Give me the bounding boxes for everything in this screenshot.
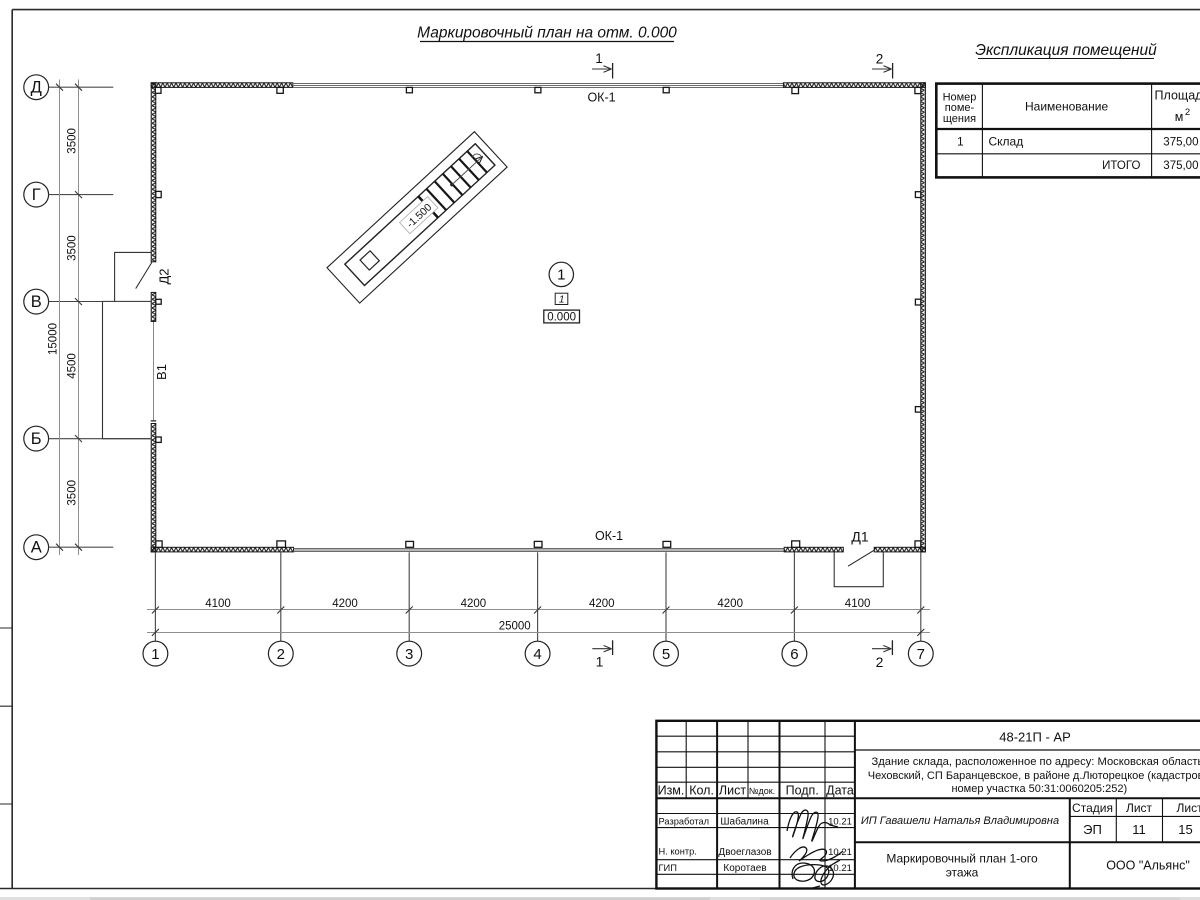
svg-text:2: 2 bbox=[1185, 107, 1190, 118]
svg-text:3500: 3500 bbox=[67, 480, 79, 506]
svg-text:4100: 4100 bbox=[205, 598, 231, 610]
svg-text:Г: Г bbox=[32, 186, 41, 204]
svg-text:этажа: этажа bbox=[946, 865, 979, 879]
svg-text:6: 6 bbox=[790, 646, 798, 663]
svg-text:2: 2 bbox=[876, 654, 884, 670]
svg-text:Лист: Лист bbox=[719, 784, 746, 798]
svg-text:4200: 4200 bbox=[332, 598, 358, 610]
svg-text:2: 2 bbox=[876, 52, 884, 67]
svg-text:Шабалина: Шабалина bbox=[720, 815, 769, 827]
svg-text:1: 1 bbox=[557, 267, 565, 284]
svg-text:4: 4 bbox=[533, 646, 541, 663]
svg-text:1: 1 bbox=[595, 51, 603, 66]
svg-text:Б: Б bbox=[31, 430, 42, 448]
svg-text:Изм.: Изм. bbox=[658, 784, 685, 798]
svg-text:375,00: 375,00 bbox=[1163, 160, 1198, 172]
svg-text:3500: 3500 bbox=[67, 128, 79, 154]
svg-text:7: 7 bbox=[917, 646, 925, 663]
svg-text:ИП Гавашели Наталья Владимиров: ИП Гавашели Наталья Владимировна bbox=[861, 815, 1059, 827]
svg-text:Лист: Лист bbox=[1126, 801, 1153, 815]
svg-text:2: 2 bbox=[277, 646, 285, 663]
svg-text:Двоеглазов: Двоеглазов bbox=[718, 847, 771, 858]
svg-text:4200: 4200 bbox=[461, 598, 487, 610]
svg-text:Здание склада, расположенное п: Здание склада, расположенное по адресу: … bbox=[872, 756, 1200, 768]
svg-text:Н. контр.: Н. контр. bbox=[659, 847, 697, 857]
svg-text:Коротаев: Коротаев bbox=[723, 863, 766, 874]
svg-text:0.000: 0.000 bbox=[547, 311, 576, 323]
svg-text:Подп.: Подп. bbox=[786, 784, 819, 798]
svg-text:10.21: 10.21 bbox=[828, 847, 852, 858]
svg-text:5: 5 bbox=[662, 646, 670, 663]
svg-text:В1: В1 bbox=[154, 364, 169, 380]
svg-text:Маркировочный план 1-ого: Маркировочный план 1-ого bbox=[886, 852, 1038, 866]
svg-text:В: В bbox=[31, 293, 42, 311]
svg-text:номер участка 50:31:0060205:25: номер участка 50:31:0060205:252) bbox=[951, 783, 1127, 795]
svg-text:15: 15 bbox=[1178, 822, 1192, 837]
svg-text:Д1: Д1 bbox=[851, 528, 868, 544]
svg-text:Чеховский, СП Баранцевское, в: Чеховский, СП Баранцевское, в районе д.Л… bbox=[868, 770, 1200, 782]
svg-text:4200: 4200 bbox=[717, 598, 743, 610]
svg-text:Наименование: Наименование bbox=[1025, 100, 1109, 114]
svg-text:Д2: Д2 bbox=[157, 268, 172, 284]
svg-text:Площадь,: Площадь, bbox=[1155, 89, 1200, 103]
svg-text:Дата: Дата bbox=[826, 784, 854, 798]
svg-text:375,00: 375,00 bbox=[1163, 137, 1198, 149]
svg-text:Кол.: Кол. bbox=[689, 784, 714, 798]
svg-text:ОК-1: ОК-1 bbox=[587, 91, 615, 105]
svg-text:3: 3 bbox=[405, 646, 413, 663]
svg-text:3500: 3500 bbox=[67, 235, 79, 261]
svg-text:ООО "Альянс": ООО "Альянс" bbox=[1106, 859, 1190, 873]
svg-text:48-21П - АР: 48-21П - АР bbox=[999, 730, 1071, 745]
svg-text:Склад: Склад bbox=[989, 135, 1024, 149]
svg-text:ОК-1: ОК-1 bbox=[595, 529, 623, 543]
svg-text:11: 11 bbox=[1132, 822, 1146, 837]
svg-text:ГИП: ГИП bbox=[659, 863, 677, 873]
svg-text:ИТОГО: ИТОГО bbox=[1102, 160, 1140, 172]
svg-text:ЭП: ЭП bbox=[1083, 822, 1102, 837]
svg-text:А: А bbox=[31, 539, 42, 557]
svg-text:Стадия: Стадия bbox=[1072, 801, 1113, 815]
svg-text:15000: 15000 bbox=[47, 323, 59, 355]
svg-text:1: 1 bbox=[559, 295, 565, 306]
svg-text:1: 1 bbox=[957, 135, 964, 149]
svg-text:4500: 4500 bbox=[67, 353, 79, 379]
svg-text:25000: 25000 bbox=[499, 621, 531, 633]
svg-text:4100: 4100 bbox=[845, 598, 871, 610]
svg-text:м: м bbox=[1175, 110, 1184, 124]
svg-text:1: 1 bbox=[596, 654, 604, 670]
svg-text:щения: щения bbox=[943, 113, 976, 125]
svg-text:Листов: Листов bbox=[1177, 801, 1200, 815]
svg-text:№док.: №док. bbox=[749, 786, 775, 796]
svg-text:4200: 4200 bbox=[589, 598, 615, 610]
svg-text:Разработал: Разработал bbox=[659, 816, 710, 826]
svg-text:Д: Д bbox=[31, 79, 42, 97]
svg-text:Экспликация помещений: Экспликация помещений bbox=[975, 42, 1157, 59]
svg-text:1: 1 bbox=[151, 646, 159, 663]
svg-text:Маркировочный план на отм. 0.0: Маркировочный план на отм. 0.000 bbox=[417, 25, 677, 42]
